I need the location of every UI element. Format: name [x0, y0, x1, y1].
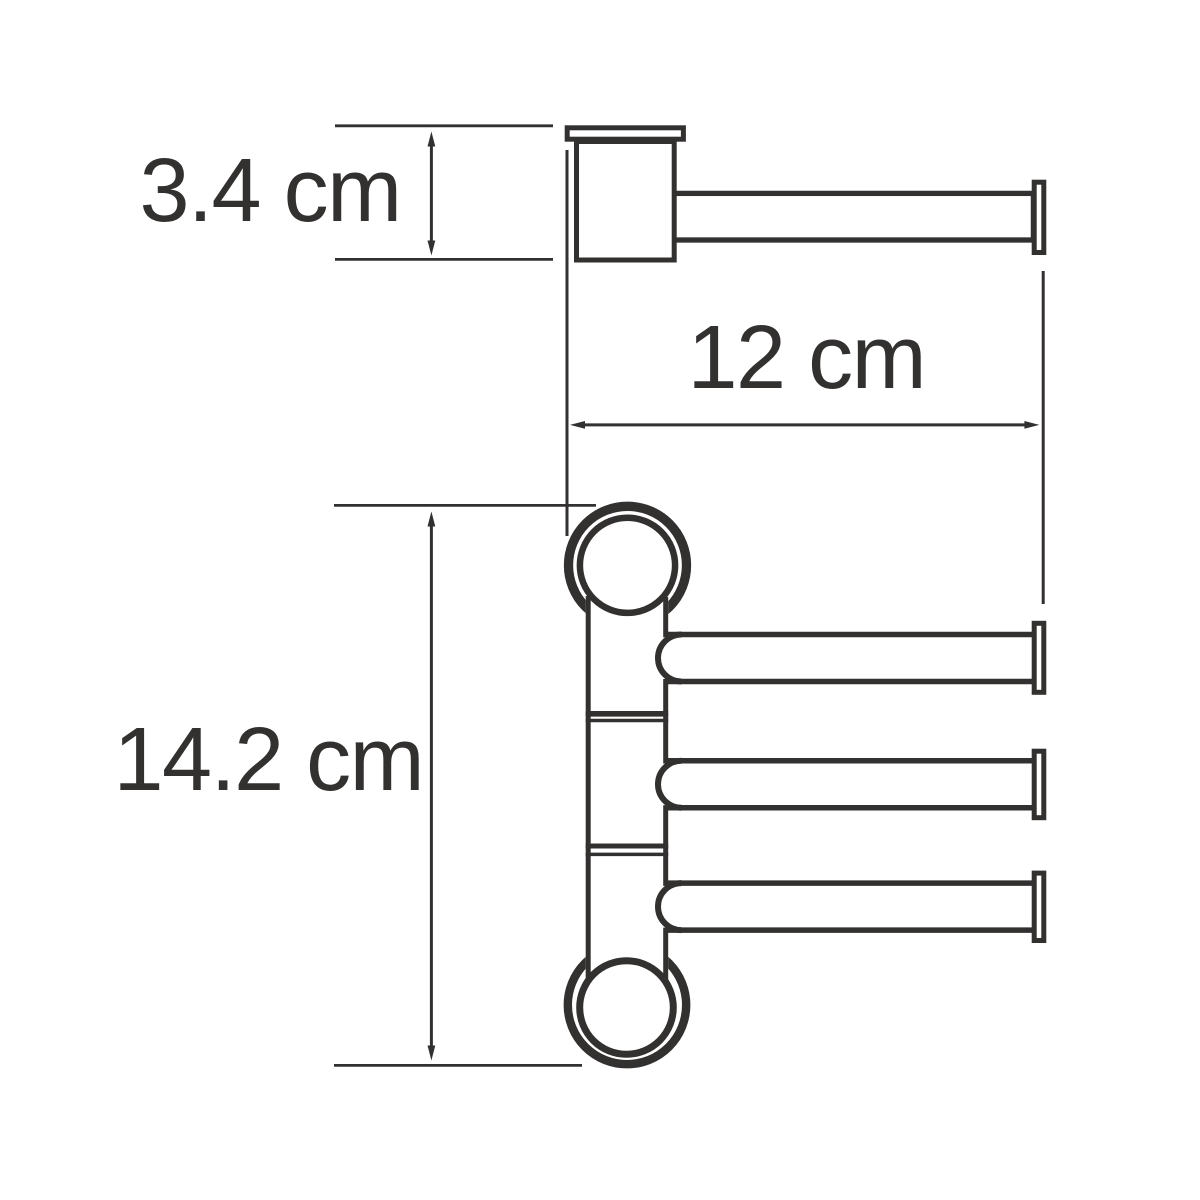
svg-text:3.4 cm: 3.4 cm — [140, 141, 401, 241]
svg-text:14.2 cm: 14.2 cm — [114, 710, 424, 810]
svg-text:12 cm: 12 cm — [688, 308, 926, 408]
